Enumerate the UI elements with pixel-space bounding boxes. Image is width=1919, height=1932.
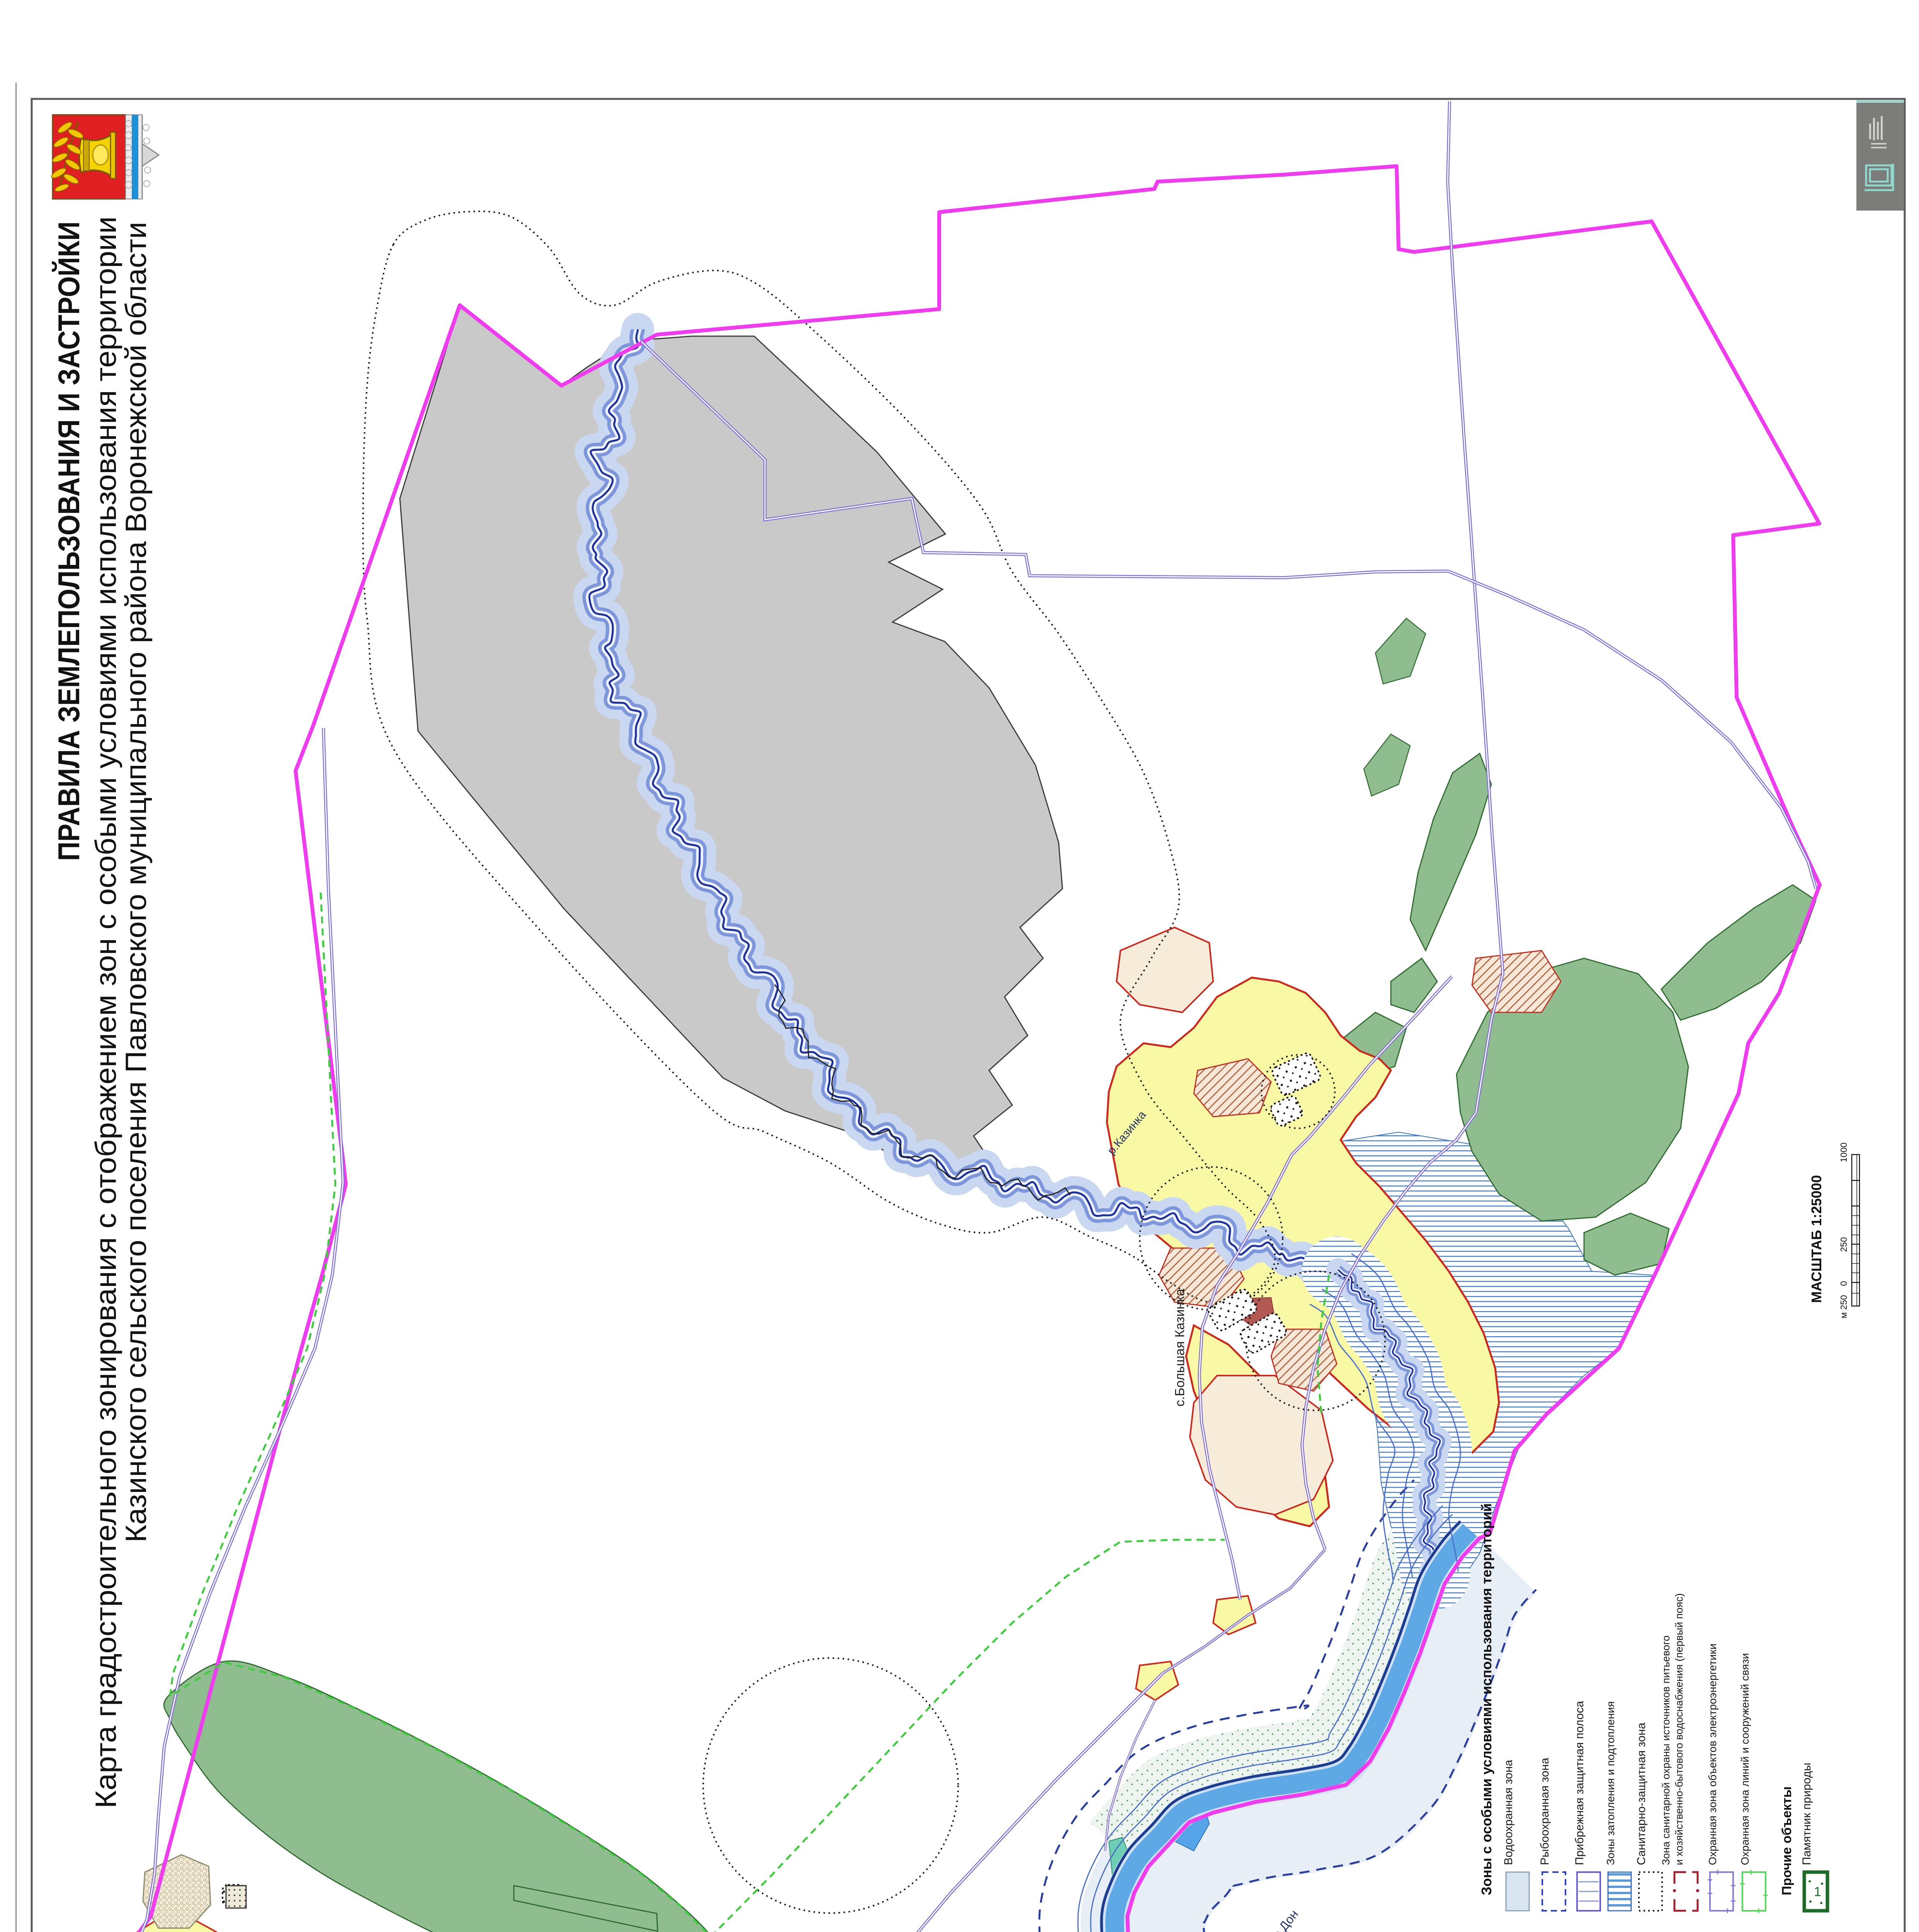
svg-text:Прочие объекты: Прочие объекты xyxy=(1780,1786,1794,1895)
svg-text:ПРАВИЛА ЗЕМЛЕПОЛЬЗОВАНИЯ И ЗАС: ПРАВИЛА ЗЕМЛЕПОЛЬЗОВАНИЯ И ЗАСТРОЙКИ xyxy=(52,221,86,861)
svg-text:1: 1 xyxy=(1814,1884,1821,1899)
svg-text:Охранная зона линий и сооружен: Охранная зона линий и сооружений связи xyxy=(1739,1653,1751,1865)
svg-text:1000: 1000 xyxy=(1839,1143,1849,1162)
svg-text:МАСШТАБ 1:25000: МАСШТАБ 1:25000 xyxy=(1809,1175,1824,1303)
svg-text:Санитарно-защитная зона: Санитарно-защитная зона xyxy=(1635,1723,1648,1865)
svg-text:м 250: м 250 xyxy=(1839,1295,1849,1318)
svg-text:0: 0 xyxy=(1839,1281,1849,1286)
svg-text:250: 250 xyxy=(1839,1237,1849,1252)
svg-text:и хозяйственно-бытового водосн: и хозяйственно-бытового водоснабжения (п… xyxy=(1673,1593,1685,1865)
svg-text:Водоохранная зона: Водоохранная зона xyxy=(1502,1760,1515,1865)
svg-text:Зоны затопления и подтопления: Зоны затопления и подтопления xyxy=(1605,1701,1616,1865)
svg-text:Охранная зона объектов электро: Охранная зона объектов электроэнергетики xyxy=(1707,1643,1718,1865)
svg-text:Карта градостроительного зонир: Карта градостроительного зонирования с о… xyxy=(90,216,122,1808)
svg-text:Зоны с особыми условиями испол: Зоны с особыми условиями использования т… xyxy=(1479,1503,1494,1895)
svg-text:Памятник природы: Памятник природы xyxy=(1800,1763,1813,1865)
svg-text:Рыбоохранная зона: Рыбоохранная зона xyxy=(1538,1758,1551,1865)
svg-text:Зона санитарной охраны источни: Зона санитарной охраны источников питьев… xyxy=(1660,1635,1672,1865)
svg-text:Казинского сельского поселения: Казинского сельского поселения Павловско… xyxy=(120,222,153,1543)
svg-text:с.Большая Казинка: с.Большая Казинка xyxy=(1173,1289,1187,1406)
svg-text:Прибрежная защитная полоса: Прибрежная защитная полоса xyxy=(1573,1701,1586,1865)
